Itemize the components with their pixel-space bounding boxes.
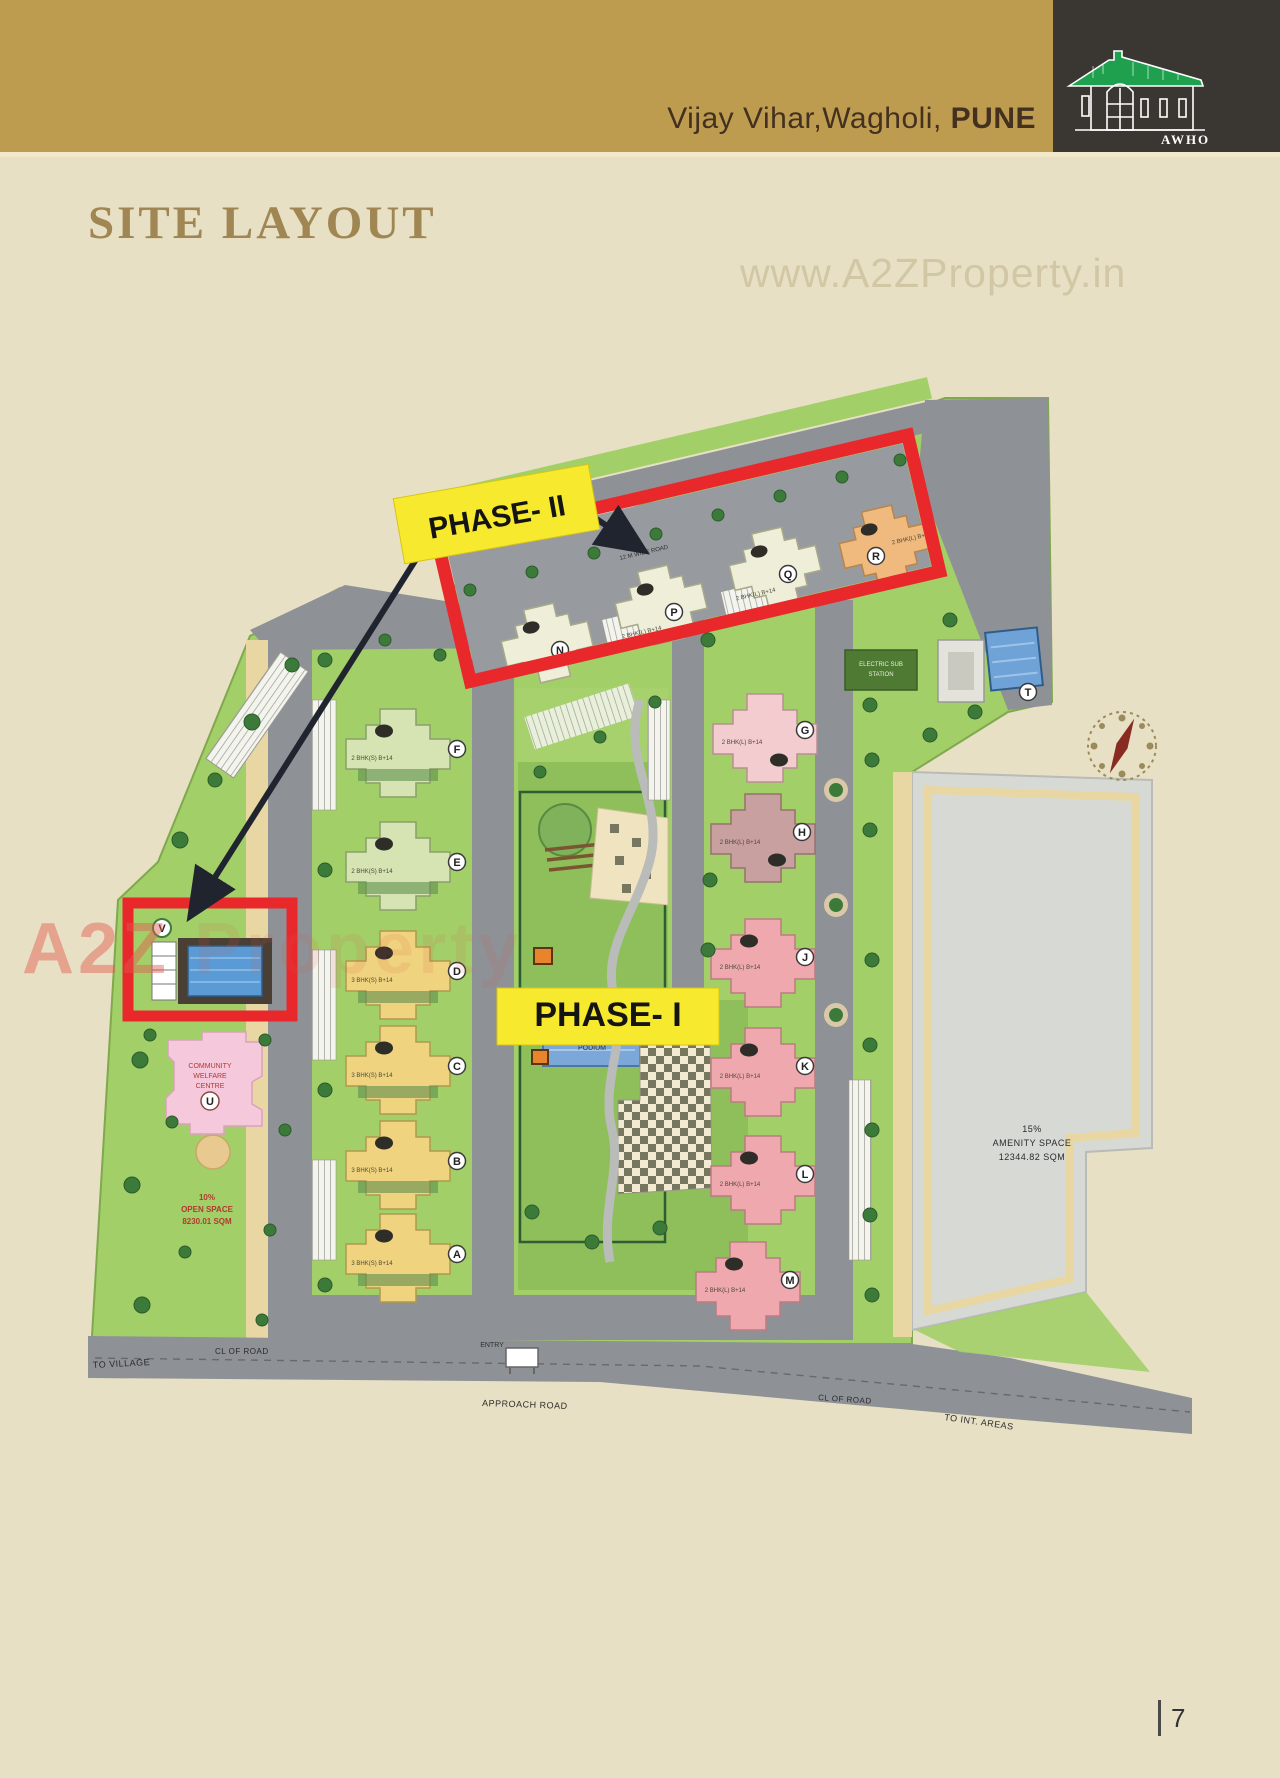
building-letter-e: E	[453, 857, 460, 869]
cl-of-road-left-label: CL OF ROAD	[215, 1347, 269, 1356]
location-text: Vijay Vihar,Wagholi,	[667, 102, 950, 135]
building-letter-k: K	[801, 1061, 809, 1073]
amenity-space-area: 15% AMENITY SPACE 12344.82 SQM	[912, 772, 1152, 1330]
building-letter-q: Q	[784, 569, 793, 581]
building-units-k: 2 BHK(L) B+14	[720, 1074, 761, 1080]
community-welfare-centre: COMMUNITY WELFARE CENTRE U	[166, 1032, 262, 1134]
watermark-top: www.A2ZProperty.in	[740, 250, 1126, 297]
building-letter-u: U	[206, 1096, 214, 1108]
building-units-m: 2 BHK(L) B+14	[705, 1288, 746, 1294]
electric-substation: ELECTRIC SUB STATION	[845, 650, 917, 690]
entry-label: ENTRY	[480, 1342, 504, 1349]
building-letter-t: T	[1025, 687, 1032, 699]
header-banner: Vijay Vihar,Wagholi, PUNE	[0, 0, 1280, 157]
community-label-3: CENTRE	[196, 1083, 225, 1090]
electric-label-2: STATION	[868, 672, 893, 678]
amenity-label-1: 15%	[1022, 1124, 1042, 1134]
approach-road-label: APPROACH ROAD	[482, 1398, 568, 1411]
building-letter-h: H	[798, 827, 806, 839]
building-letter-f: F	[454, 744, 461, 756]
page-number: 7	[1158, 1700, 1185, 1736]
building-letter-g: G	[801, 725, 810, 737]
watermark-left-faint: Property	[170, 909, 522, 989]
building-units-c: 3 BHK(S) B+14	[351, 1073, 393, 1079]
building-letter-b: B	[453, 1156, 461, 1168]
building-letter-a: A	[453, 1249, 461, 1261]
phase1-callout: PHASE- I	[497, 988, 719, 1045]
building-letter-c: C	[453, 1061, 461, 1073]
awho-logo-block: AWHO	[1053, 0, 1280, 152]
building-letter-m: M	[785, 1275, 794, 1287]
awho-logo-text: AWHO	[1161, 132, 1210, 148]
building-letter-r: R	[872, 551, 880, 563]
location-city: PUNE	[951, 102, 1036, 135]
watermark-left: A2Z Property	[22, 908, 522, 990]
building-units-l: 2 BHK(L) B+14	[720, 1182, 761, 1188]
compass-icon	[1088, 712, 1156, 780]
phase1-label: PHASE- I	[534, 996, 681, 1034]
project-location: Vijay Vihar,Wagholi, PUNE	[667, 102, 1036, 136]
building-units-f: 2 BHK(S) B+14	[351, 756, 393, 762]
building-units-b: 3 BHK(S) B+14	[351, 1168, 393, 1174]
page-title: SITE LAYOUT	[88, 196, 437, 250]
community-label-2: WELFARE	[193, 1073, 227, 1080]
electric-label-1: ELECTRIC SUB	[859, 662, 903, 668]
open-space-label-2: OPEN SPACE	[181, 1205, 234, 1214]
watermark-left-strong: A2Z	[22, 909, 170, 989]
building-units-h: 2 BHK(L) B+14	[720, 840, 761, 846]
building-units-j: 2 BHK(L) B+14	[720, 965, 761, 971]
building-units-a: 3 BHK(S) B+14	[351, 1261, 393, 1267]
building-units-g: 2 BHK(L) B+14	[722, 740, 763, 746]
amenity-label-3: 12344.82 SQM	[999, 1152, 1066, 1162]
building-letter-p: P	[670, 607, 677, 619]
community-label-1: COMMUNITY	[188, 1063, 231, 1070]
open-space-label-1: 10%	[199, 1193, 215, 1202]
open-space-label-3: 8230.01 SQM	[182, 1217, 232, 1226]
amenity-label-2: AMENITY SPACE	[993, 1138, 1072, 1148]
building-letter-j: J	[802, 952, 808, 964]
building-letter-l: L	[802, 1169, 809, 1181]
awho-house-icon	[1053, 0, 1280, 152]
podium-label: PODIUM	[578, 1045, 606, 1052]
building-units-e: 2 BHK(S) B+14	[351, 869, 393, 875]
